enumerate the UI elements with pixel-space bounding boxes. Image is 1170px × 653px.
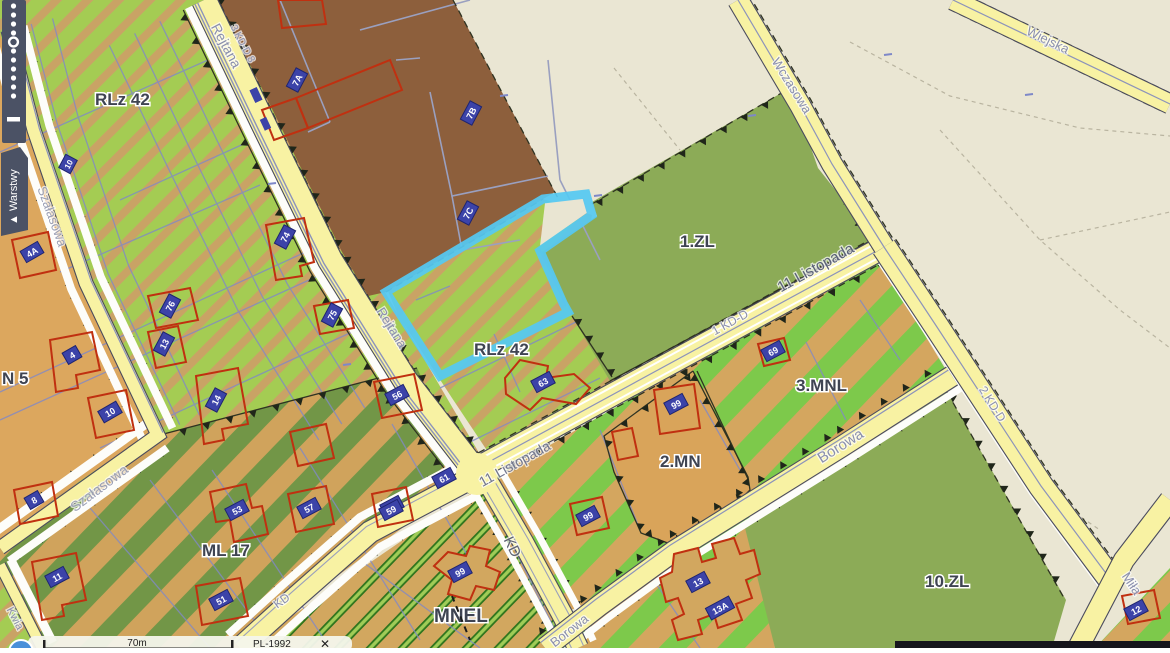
svg-text:10.ZL: 10.ZL [925,572,969,591]
svg-text:N 5: N 5 [2,369,28,388]
svg-text:2.MN: 2.MN [660,452,701,471]
svg-text:RLz 42: RLz 42 [95,90,150,109]
svg-text:RLz 42: RLz 42 [474,340,529,359]
svg-text:70m: 70m [127,638,146,648]
svg-text:3.MNL: 3.MNL [796,376,847,395]
svg-text:PL-1992: PL-1992 [253,639,291,648]
svg-text:▲ Warstwy: ▲ Warstwy [8,169,20,225]
svg-text:✕: ✕ [320,637,330,648]
svg-text:ML 17: ML 17 [202,541,250,560]
svg-text:1.ZL: 1.ZL [680,232,715,251]
